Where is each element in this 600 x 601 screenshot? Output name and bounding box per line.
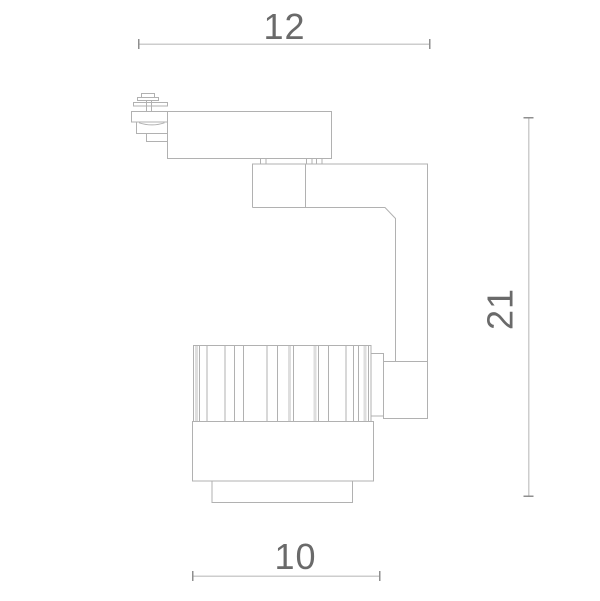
dimension-top-width: 12 — [139, 6, 430, 49]
adapter-cylinder-arc — [139, 123, 165, 125]
housing-arm-stubs — [261, 159, 323, 165]
swivel-arm — [253, 164, 428, 419]
adapter-step-lower — [147, 134, 168, 142]
driver-housing — [168, 112, 332, 159]
arm-mount-block — [384, 362, 428, 419]
adapter-plate — [134, 103, 168, 107]
technical-drawing: 12 21 10 — [0, 0, 600, 601]
head-connector — [371, 354, 384, 417]
dimension-right-height: 21 — [480, 118, 534, 497]
drawing-canvas: 12 21 10 — [0, 0, 600, 601]
adapter-step-upper — [132, 112, 168, 123]
dimension-label-bottom-width: 10 — [274, 536, 316, 577]
dimension-bottom-width: 10 — [193, 536, 380, 581]
fixture-drawing — [132, 94, 428, 503]
lamp-lens-ring — [212, 481, 353, 503]
lamp-bezel — [193, 422, 374, 482]
adapter-contact-tip — [142, 94, 155, 98]
heatsink-body — [194, 346, 372, 422]
dimension-label-right-height: 21 — [480, 288, 521, 330]
arm-outer-edge — [253, 164, 428, 419]
dimension-label-top-width: 12 — [263, 6, 305, 47]
adapter-contact-flange — [138, 98, 159, 101]
track-adapter — [132, 94, 168, 142]
arm-inner-edge — [253, 208, 396, 362]
lamp-heatsink — [194, 346, 372, 422]
